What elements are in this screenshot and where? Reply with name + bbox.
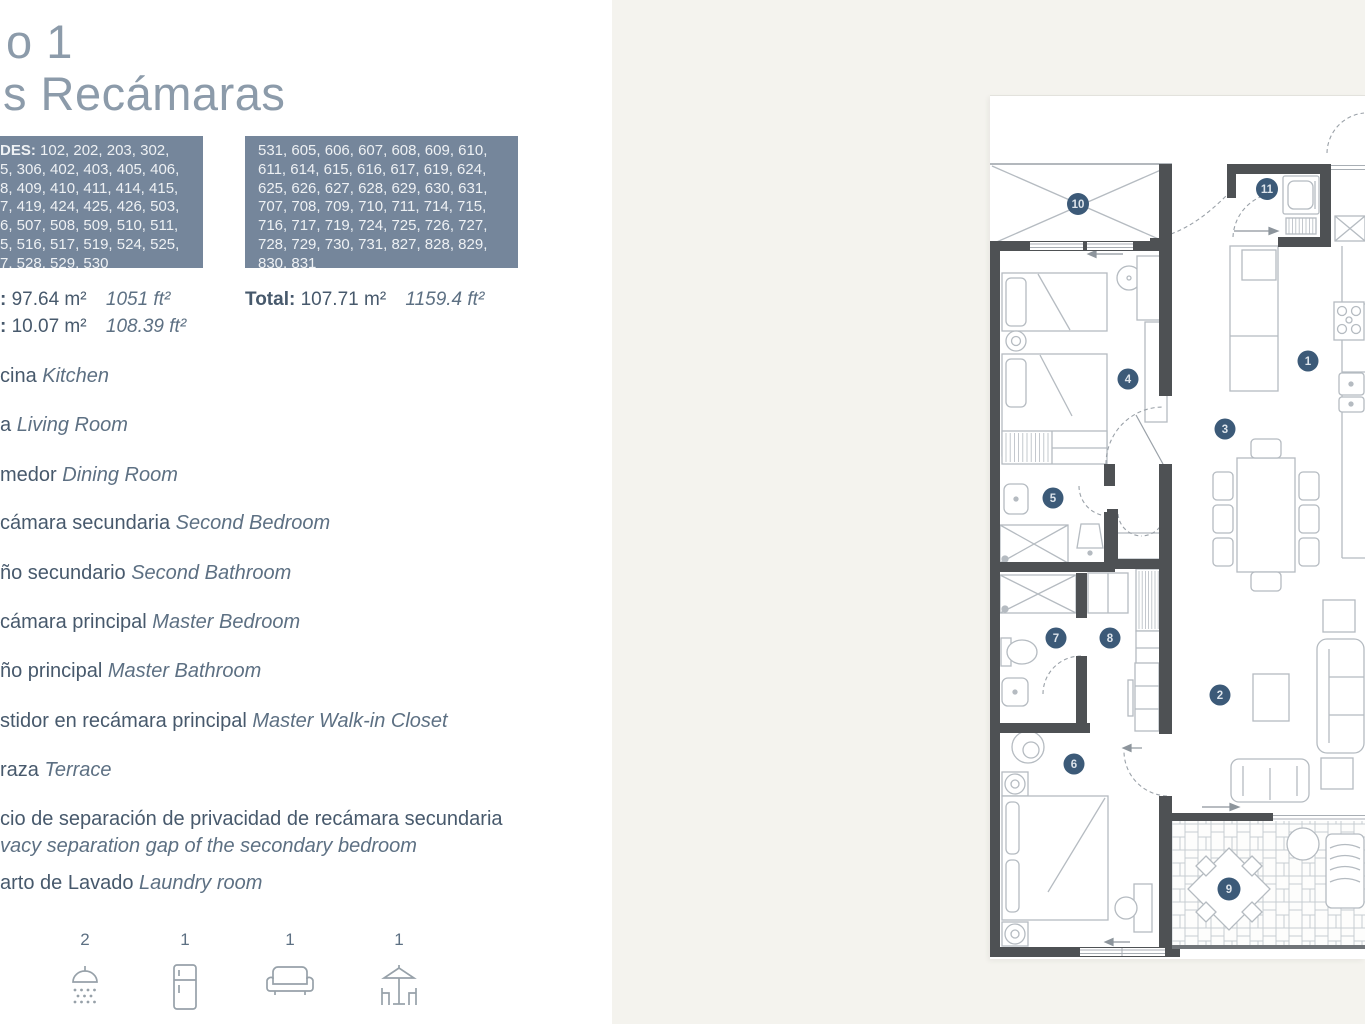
svg-text:11: 11	[1261, 184, 1274, 196]
svg-text:1: 1	[1305, 356, 1312, 368]
room-second-bathroom: ño secundario Second Bathroom	[0, 562, 291, 585]
svg-text:10: 10	[1072, 199, 1085, 211]
marker-master-bedroom: 6	[1064, 754, 1085, 775]
marker-terrace: 9	[1218, 878, 1241, 901]
sofa	[1317, 639, 1364, 753]
chair	[1299, 472, 1319, 500]
marker-laundry: 11	[1256, 178, 1278, 200]
total-ft2: 1159.4 ft²	[405, 289, 484, 310]
svg-text:4: 4	[1125, 374, 1132, 386]
terrace-area-line: : 10.07 m² 108.39 ft²	[0, 316, 186, 338]
interior-ft2: 1051 ft²	[106, 289, 170, 310]
svg-text:9: 9	[1226, 884, 1232, 896]
coffee-table	[1253, 674, 1289, 721]
terrace-ft2: 108.39 ft²	[106, 316, 186, 337]
svg-text:8: 8	[1107, 633, 1114, 645]
svg-text:3: 3	[1222, 424, 1228, 436]
shower-count: 2	[47, 930, 123, 950]
chair	[1213, 538, 1233, 566]
second-bedroom-furniture	[1002, 256, 1167, 464]
page-title-line1: o 1	[6, 14, 73, 69]
svg-text:7: 7	[1053, 633, 1059, 645]
marker-master-bathroom: 7	[1046, 628, 1067, 649]
units-list-1: 102, 202, 203, 302, 5, 306, 402, 403, 40…	[0, 142, 179, 268]
side-table	[1321, 758, 1353, 789]
units-list-2: 531, 605, 606, 607, 608, 609, 610, 611, …	[258, 142, 487, 268]
room-second-bedroom: cámara secundaria Second Bedroom	[0, 512, 330, 535]
room-dining: medor Dining Room	[0, 464, 178, 487]
sofa-icon	[265, 963, 315, 999]
brochure-page: o 1 s Recámaras DES: 102, 202, 203, 302,…	[0, 0, 1365, 1024]
vestibule-door-arc	[1171, 196, 1226, 234]
terrace-set-count: 1	[361, 930, 437, 950]
chair	[1251, 572, 1281, 591]
room-laundry: arto de Lavado Laundry room	[0, 872, 262, 895]
room-master-bedroom: cámara principal Master Bedroom	[0, 611, 300, 634]
dining-furniture	[1213, 439, 1319, 591]
marker-living: 2	[1210, 685, 1231, 706]
refrigerator-icon	[171, 963, 199, 1011]
master-door-arc	[1124, 752, 1167, 796]
chair	[1251, 439, 1281, 458]
chair	[1299, 538, 1319, 566]
laundry-fixtures	[1283, 176, 1319, 234]
terrace-set-icon	[375, 963, 423, 1009]
svg-text:6: 6	[1071, 759, 1077, 771]
units-box-2: 531, 605, 606, 607, 608, 609, 610, 611, …	[245, 136, 518, 268]
chair	[1213, 505, 1233, 533]
chair	[1213, 472, 1233, 500]
amenity-refrigerator: 1	[147, 930, 223, 1011]
side-table	[1323, 600, 1355, 632]
walkin-closet-furniture	[1088, 569, 1167, 671]
master-bath-door-arc	[1043, 656, 1081, 694]
tv-console	[1135, 663, 1159, 731]
tv	[1128, 680, 1133, 716]
svg-text:5: 5	[1050, 493, 1057, 505]
shower-icon	[66, 963, 104, 1009]
total-label: Total:	[245, 289, 295, 310]
interior-m2: 97.64 m²	[12, 289, 87, 310]
total-area-line: Total: 107.71 m² 1159.4 ft²	[245, 289, 484, 311]
chair	[1115, 897, 1137, 919]
room-terrace: raza Terrace	[0, 759, 112, 782]
terrace-label: :	[0, 316, 6, 337]
marker-dining: 3	[1215, 419, 1236, 440]
marker-second-bathroom: 5	[1043, 488, 1064, 509]
hall-chair	[1077, 524, 1103, 548]
amenity-shower: 2	[47, 930, 123, 1009]
units-label: DES:	[0, 142, 36, 159]
room-walkin-closet: stidor en recámara principal Master Walk…	[0, 710, 448, 733]
marker-walkin-closet: 8	[1100, 628, 1121, 649]
marker-kitchen: 1	[1298, 351, 1319, 372]
room-kitchen: cina Kitchen	[0, 365, 109, 388]
units-box-1: DES: 102, 202, 203, 302, 5, 306, 402, 40…	[0, 136, 203, 268]
entry-door-arc	[1327, 113, 1364, 153]
bathroom-door-arc	[1079, 486, 1109, 516]
dining-table	[1237, 458, 1295, 572]
marker-privacy-gap: 10	[1067, 193, 1089, 215]
plant	[1287, 828, 1319, 860]
floor-plan: 1 2 3 4 5 6 7 8 9 10 11	[990, 96, 1365, 959]
room-privacy-gap: cio de separación de privacidad de recám…	[0, 808, 503, 858]
room-living: a Living Room	[0, 414, 128, 437]
refrigerator-count: 1	[147, 930, 223, 950]
amenity-sofa: 1	[252, 930, 328, 999]
marker-second-bedroom: 4	[1118, 369, 1139, 390]
page-title-line2: s Recámaras	[3, 66, 285, 121]
drying-rack	[1286, 218, 1316, 234]
sofa-count: 1	[252, 930, 328, 950]
room-master-bathroom: ño principal Master Bathroom	[0, 660, 261, 683]
svg-text:2: 2	[1217, 690, 1223, 702]
floor-plan-panel: 1 2 3 4 5 6 7 8 9 10 11	[990, 95, 1365, 959]
interior-area-line: : 97.64 m² 1051 ft²	[0, 289, 170, 311]
terrace-m2: 10.07 m²	[12, 316, 87, 337]
total-m2: 107.71 m²	[301, 289, 387, 310]
chair	[1299, 505, 1319, 533]
amenity-terrace-set: 1	[361, 930, 437, 1009]
interior-label: :	[0, 289, 6, 310]
